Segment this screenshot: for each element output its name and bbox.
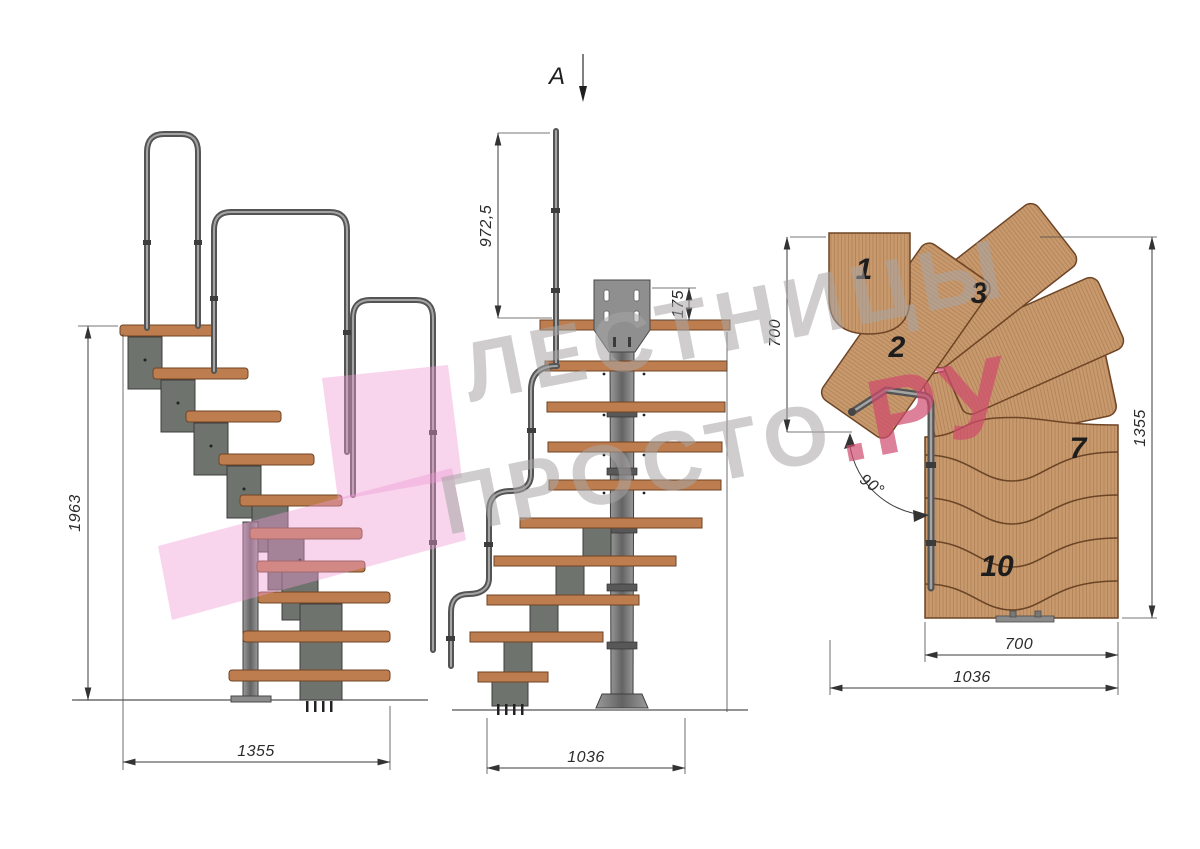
dim-side-height: 1963 xyxy=(67,494,84,532)
post-base-plate xyxy=(231,696,271,702)
dim-flight-width: 700 xyxy=(1005,636,1033,653)
dim-total-width: 1036 xyxy=(953,669,991,686)
anchor-bolts xyxy=(306,701,333,712)
section-label: A xyxy=(547,63,565,90)
section-arrow-head xyxy=(579,86,587,102)
tread xyxy=(186,411,281,422)
drawing-canvas: 1963 1355 A xyxy=(0,0,1200,849)
step-number: 7 xyxy=(1070,432,1088,465)
tread xyxy=(219,454,314,465)
dim-total-depth: 1355 xyxy=(1132,409,1149,447)
step-number: 10 xyxy=(980,550,1014,583)
dim-side-width: 1355 xyxy=(237,743,275,760)
tread xyxy=(153,368,248,379)
dim-rail-height: 972,5 xyxy=(478,205,495,248)
tread xyxy=(243,631,390,642)
tread xyxy=(478,672,548,682)
tread xyxy=(258,592,390,603)
tread xyxy=(494,556,676,566)
tread xyxy=(487,595,639,605)
column-base xyxy=(596,694,648,708)
tread xyxy=(470,632,603,642)
technical-drawing: 1963 1355 A xyxy=(0,0,1200,849)
dim-front-width: 1036 xyxy=(567,749,605,766)
tread xyxy=(229,670,390,681)
